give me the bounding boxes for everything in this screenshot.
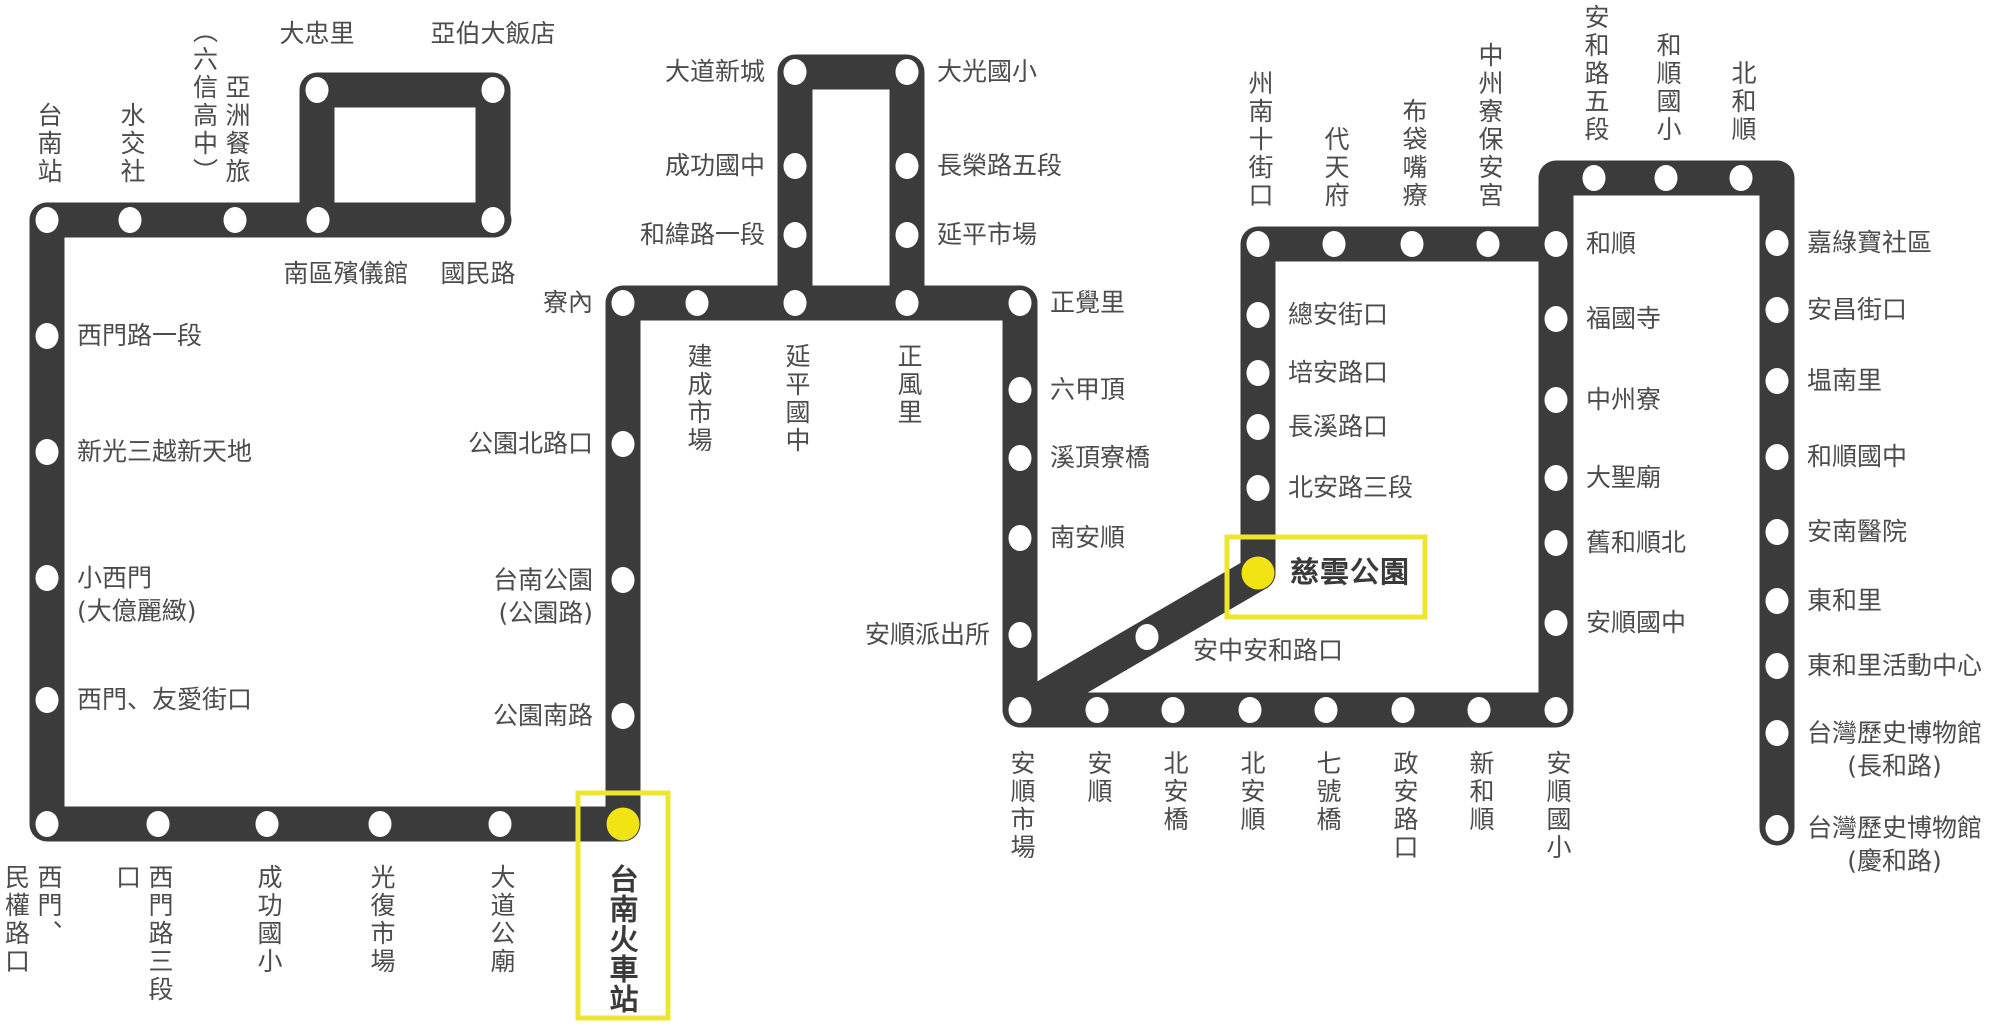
station-label: 光復市場 <box>365 864 398 976</box>
station-label: 和順國小 <box>1651 32 1684 144</box>
station-label: 新光三越新天地 <box>77 436 252 469</box>
station-label: 水交社 <box>115 102 148 186</box>
station-label: 安順國中 <box>1586 607 1686 640</box>
station-label: 台灣歷史博物館 (慶和路) <box>1807 813 1982 878</box>
station-label: 和順國中 <box>1807 441 1907 474</box>
station-label: 大忠里 <box>279 18 354 51</box>
station-label: 七號橋 <box>1311 750 1344 834</box>
station-label: 西門、 民權路口 <box>0 864 64 976</box>
station-label: 培安路口 <box>1288 357 1388 390</box>
highlighted-station-label-tainan-railway-station: 台南火車站 <box>602 864 640 1014</box>
station-label: 公園北路口 <box>468 428 593 461</box>
bus-route-map: 台南站水交社亞洲餐旅 （六信高中）南區殯儀館大忠里亞伯大飯店國民路西門路一段新光… <box>0 0 2000 1030</box>
station-label: 安順 <box>1082 750 1115 806</box>
station-label: 新和順 <box>1464 750 1497 834</box>
station-label: 總安街口 <box>1288 299 1388 332</box>
station-label: 成功國中 <box>665 150 765 183</box>
station-label: 台南站 <box>32 102 65 186</box>
station-label: 東和里活動中心 <box>1807 650 1982 683</box>
station-label: 西門路一段 <box>77 320 202 353</box>
station-label: 安中安和路口 <box>1193 635 1343 668</box>
station-label: 政安路口 <box>1388 750 1421 862</box>
station-label: 成功國小 <box>252 864 285 976</box>
station-label: 中州寮保安宮 <box>1473 42 1506 210</box>
station-label: 西門、友愛街口 <box>77 684 252 717</box>
station-label: 嘉綠寶社區 <box>1807 227 1932 260</box>
station-label: 南安順 <box>1050 522 1125 555</box>
station-label: 和緯路一段 <box>640 219 765 252</box>
station-label: 大道新城 <box>665 56 765 89</box>
station-label: 大光國小 <box>937 56 1037 89</box>
station-label: 東和里 <box>1807 585 1882 618</box>
station-label: 六甲頂 <box>1050 374 1125 407</box>
station-label: 舊和順北 <box>1586 527 1686 560</box>
station-label: 安南醫院 <box>1807 516 1907 549</box>
station-label: 長溪路口 <box>1288 411 1388 444</box>
station-label: 大道公廟 <box>485 864 518 976</box>
station-label: 代天府 <box>1319 126 1352 210</box>
station-label: 延平國中 <box>780 343 813 455</box>
station-label: 正風里 <box>892 343 925 427</box>
station-label: 布袋嘴療 <box>1397 98 1430 210</box>
station-label: 塭南里 <box>1807 365 1882 398</box>
station-label: 西門路三段口 <box>110 864 175 1030</box>
station-label: 安順派出所 <box>865 619 990 652</box>
station-label: 北和順 <box>1726 60 1759 144</box>
station-label: 長榮路五段 <box>937 150 1062 183</box>
station-label: 亞伯大飯店 <box>430 18 555 51</box>
station-label: 延平市場 <box>937 219 1037 252</box>
station-label: 福國寺 <box>1586 303 1661 336</box>
station-label: 公園南路 <box>493 700 593 733</box>
station-label: 和順 <box>1586 228 1636 261</box>
station-label: 北安路三段 <box>1288 472 1413 505</box>
station-label: 小西門 (大億麗緻) <box>77 563 197 628</box>
station-label: 亞洲餐旅 （六信高中） <box>187 6 252 186</box>
station-label: 北安順 <box>1235 750 1268 834</box>
station-label: 安昌街口 <box>1807 294 1907 327</box>
station-label: 國民路 <box>440 258 515 291</box>
station-label: 南區殯儀館 <box>283 258 408 291</box>
station-label: 州南十街口 <box>1243 70 1276 210</box>
station-label: 安和路五段 <box>1579 4 1612 144</box>
station-label: 台南公園 (公園路) <box>493 565 593 630</box>
station-label: 溪頂寮橋 <box>1050 442 1150 475</box>
station-label: 建成市場 <box>682 343 715 455</box>
station-label: 北安橋 <box>1158 750 1191 834</box>
station-labels-layer: 台南站水交社亞洲餐旅 （六信高中）南區殯儀館大忠里亞伯大飯店國民路西門路一段新光… <box>0 0 2000 1030</box>
station-label: 安順市場 <box>1005 750 1038 862</box>
station-label: 台灣歷史博物館 (長和路) <box>1807 718 1982 783</box>
station-label: 正覺里 <box>1050 287 1125 320</box>
highlighted-station-label-ciyun-park: 慈雲公園 <box>1290 554 1410 592</box>
station-label: 大聖廟 <box>1586 462 1661 495</box>
station-label: 寮內 <box>543 287 593 320</box>
station-label: 中州寮 <box>1586 384 1661 417</box>
station-label: 安順國小 <box>1541 750 1574 862</box>
